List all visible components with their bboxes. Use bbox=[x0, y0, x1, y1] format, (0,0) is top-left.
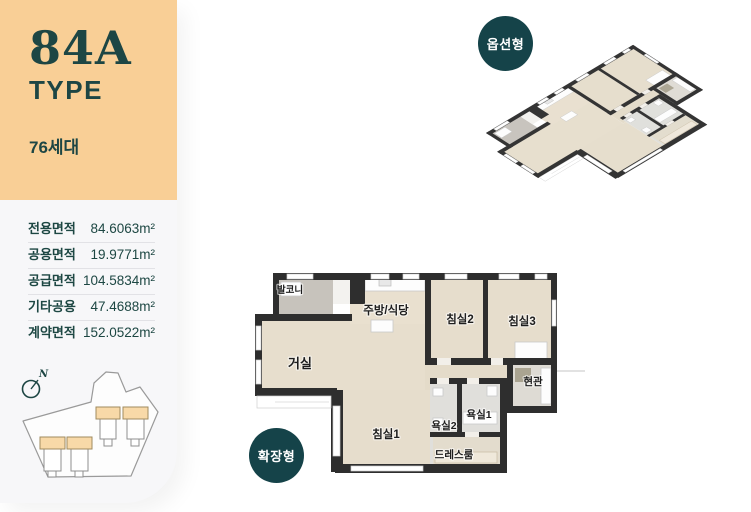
floor-plans-canvas: 발코니 주방/식당 침실2 침실3 거실 현관 침실1 욕실2 욕실1 드레스룸 bbox=[0, 0, 751, 512]
room-label-dressroom: 드레스룸 bbox=[435, 448, 474, 461]
room-label-bathroom2: 욕실2 bbox=[431, 419, 456, 432]
page: 84A TYPE 76세대 전용면적 84.6063m² 공용면적 19.977… bbox=[0, 0, 751, 512]
room-label-bedroom3: 침실3 bbox=[508, 314, 536, 328]
room-label-bedroom1: 침실1 bbox=[372, 427, 400, 441]
room-label-entrance: 현관 bbox=[523, 375, 543, 388]
extended-type-badge: 확장형 bbox=[249, 428, 304, 483]
floor-plan-extended-2d: 발코니 주방/식당 침실2 침실3 거실 현관 침실1 욕실2 욕실1 드레스룸 bbox=[255, 273, 585, 473]
option-type-badge: 옵션형 bbox=[478, 16, 533, 71]
room-label-kitchen: 주방/식당 bbox=[363, 303, 409, 317]
room-label-bathroom1: 욕실1 bbox=[466, 408, 491, 421]
room-label-bedroom2: 침실2 bbox=[446, 312, 474, 326]
room-label-living: 거실 bbox=[288, 356, 312, 371]
room-label-balcony: 발코니 bbox=[277, 284, 303, 296]
